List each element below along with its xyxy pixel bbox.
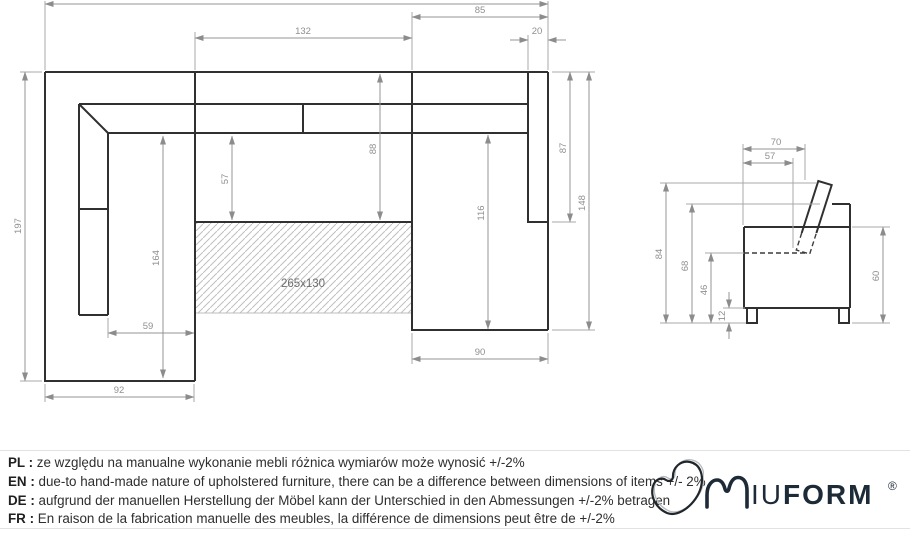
dim-label-90: 90 (475, 347, 486, 358)
dim-label-197: 197 (13, 218, 24, 234)
wordmark-iu: IU (751, 479, 783, 510)
sleeping-area-hatch: 265x130 (195, 223, 411, 313)
registered-trademark: ® (888, 479, 897, 493)
technical-drawing: 265x130 (0, 0, 910, 450)
note-separator: : (25, 455, 37, 470)
note-separator: : (27, 493, 39, 508)
dim-label-148: 148 (577, 195, 588, 211)
dim-label-20: 20 (532, 26, 543, 37)
plan-dimension-lines (25, 4, 589, 397)
dim-label-57-plan: 57 (220, 174, 231, 185)
wordmark-form: FORM (783, 479, 873, 510)
brand-logo: IUFORM ® (646, 455, 906, 525)
dim-label-116: 116 (476, 205, 487, 220)
plan-extension-lines (20, 1, 595, 402)
dim-label-92: 92 (114, 385, 125, 396)
dim-label-88: 88 (368, 144, 379, 155)
dim-label-59: 59 (143, 321, 154, 332)
note-language-label: DE (8, 493, 27, 508)
note-language-label: FR (8, 511, 26, 526)
side-view-outline (744, 181, 850, 323)
brand-wordmark: IUFORM (751, 480, 873, 510)
sofa-leg-front (747, 308, 757, 323)
dim-label-84: 84 (654, 249, 665, 260)
bean-icon (650, 457, 704, 519)
note-text: En raison de la fabrication manuelle des… (38, 511, 615, 526)
dim-label-164: 164 (151, 250, 162, 266)
sleeping-area-label: 265x130 (281, 278, 325, 290)
note-separator: : (26, 511, 38, 526)
dim-label-46: 46 (699, 285, 710, 296)
plan-dimension-labels: 132 85 20 87 148 88 57 116 197 164 59 92… (13, 5, 588, 396)
note-text: ze względu na manualne wykonanie mebli r… (37, 455, 525, 470)
dim-label-85: 85 (475, 5, 486, 16)
note-language-label: PL (8, 455, 25, 470)
dim-label-60: 60 (871, 271, 882, 282)
dim-label-68: 68 (680, 261, 691, 272)
side-extension-lines (660, 144, 890, 323)
note-text: due-to hand-made nature of upholstered f… (39, 474, 706, 489)
sofa-leg-back (839, 308, 849, 323)
dim-label-57-side: 57 (765, 151, 776, 162)
dim-label-87: 87 (558, 143, 569, 154)
dim-label-12: 12 (717, 311, 728, 322)
note-separator: : (27, 474, 39, 489)
side-dimension-labels: 70 57 84 68 46 12 60 (654, 137, 882, 321)
note-language-label: EN (8, 474, 27, 489)
note-text: aufgrund der manuellen Herstellung der M… (39, 493, 671, 508)
dim-label-70: 70 (771, 137, 782, 148)
dimension-sheet: 265x130 (0, 0, 910, 540)
m-wave-icon (705, 475, 749, 509)
dim-label-132: 132 (295, 26, 311, 37)
